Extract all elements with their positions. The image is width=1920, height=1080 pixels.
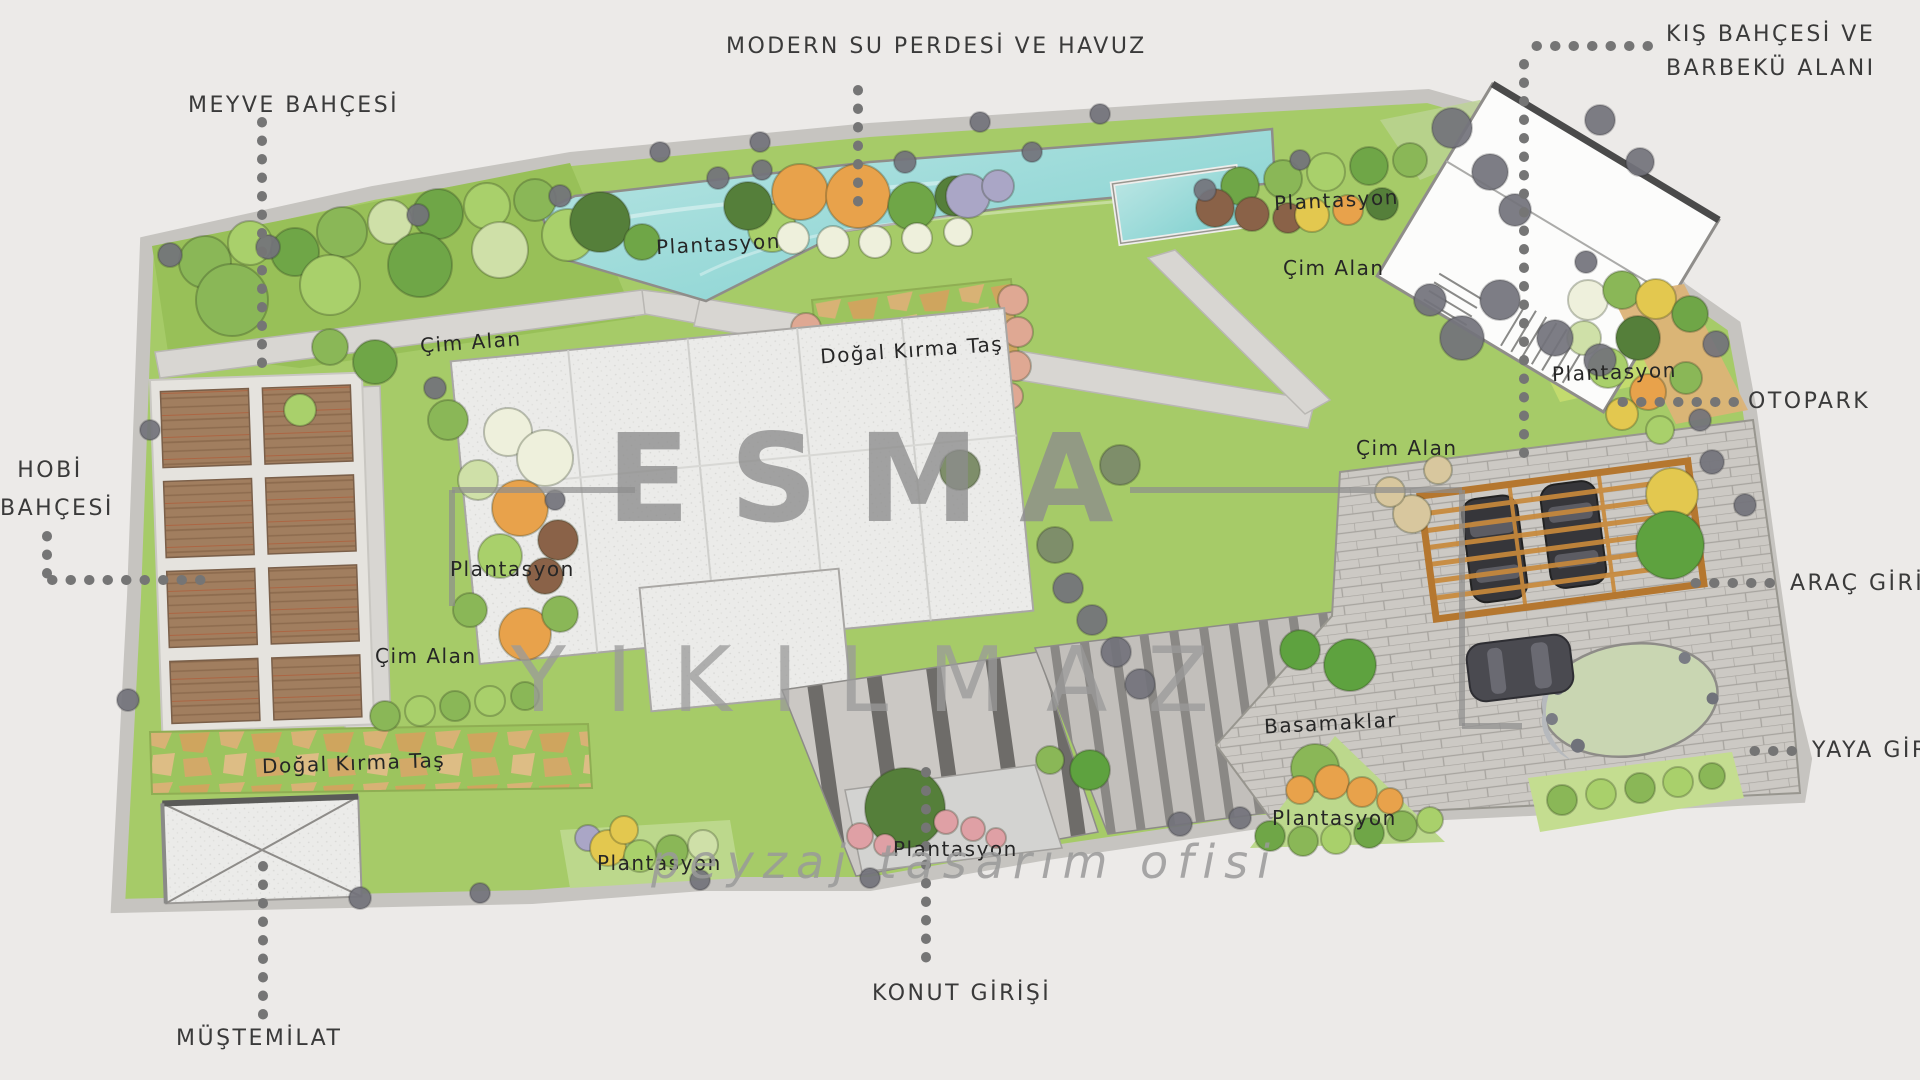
site-plan-drawing	[0, 0, 1920, 1080]
landscape-plan-canvas: MEYVE BAHÇESİ MODERN SU PERDESİ VE HAVUZ…	[0, 0, 1920, 1080]
hobby-garden	[150, 373, 374, 732]
crushed-stone-band-bottom	[150, 724, 592, 794]
driveway-car	[1465, 633, 1575, 703]
